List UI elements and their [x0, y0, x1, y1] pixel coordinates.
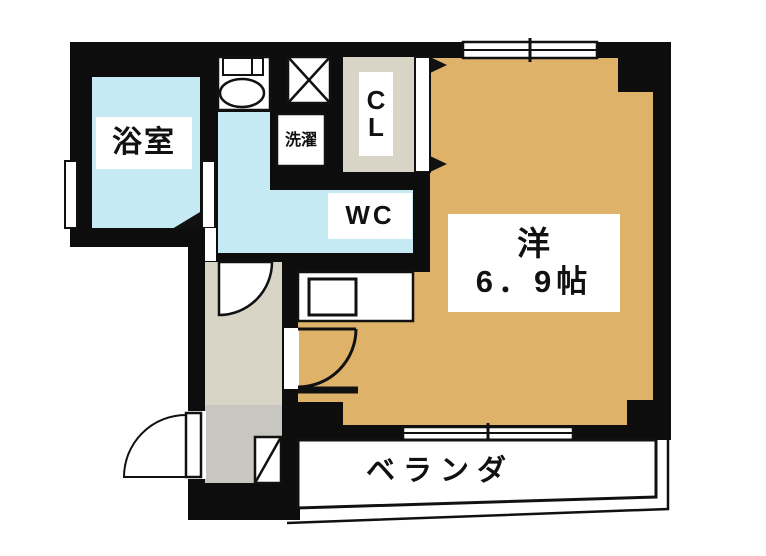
closet-label-bottom: L [368, 114, 384, 141]
toilet-icon [218, 57, 270, 110]
bathroom-door [202, 161, 215, 228]
sliding-window-top [463, 38, 597, 62]
living-room-name: 洋 [517, 227, 551, 262]
bathroom-label: 浴室 [96, 117, 192, 169]
living-room-size: 6．9帖 [476, 266, 592, 299]
closet-label-top: C [367, 87, 386, 114]
toilet-label: WC [328, 193, 412, 239]
bathroom-window [65, 161, 77, 228]
entry-door-swing [124, 411, 206, 479]
living-room-label: 洋 6．9帖 [448, 214, 620, 312]
pipe-shaft-icon [288, 57, 330, 103]
kitchen-counter [298, 272, 413, 321]
floor-plan: 浴室 洗濯 C L WC 洋 6．9帖 ベランダ [0, 0, 766, 556]
shoe-step [255, 437, 281, 483]
veranda-label: ベランダ [330, 450, 550, 492]
laundry-label: 洗濯 [278, 116, 324, 166]
closet-label: C L [359, 72, 393, 156]
doorway-gap [205, 228, 216, 261]
